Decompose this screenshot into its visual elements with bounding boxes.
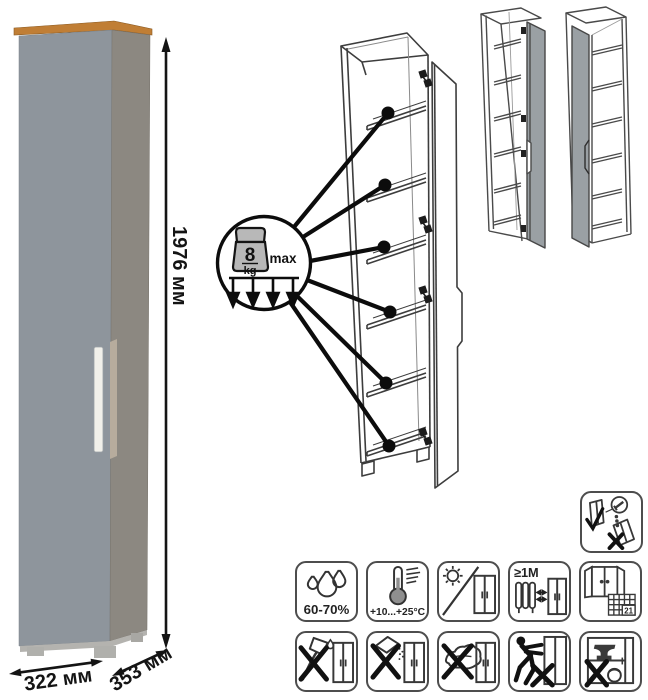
ventilation-icon: 21 xyxy=(579,561,642,622)
door-handle xyxy=(94,347,103,452)
shelves xyxy=(367,101,426,456)
cabinet-foot xyxy=(131,633,143,642)
anvil-glyph xyxy=(594,645,616,660)
no-aggressive-liquids-icon xyxy=(295,631,358,692)
heating-distance-label: ≥1M xyxy=(514,565,539,580)
temperature-icon: +10...+25°C xyxy=(366,561,429,622)
cabinet-foot xyxy=(94,646,116,658)
cabinet-photo xyxy=(0,0,210,700)
cabinet-line-drawing xyxy=(341,33,462,488)
height-dimension-label: 1976 мм xyxy=(167,226,190,306)
no-overload-icon xyxy=(579,631,642,692)
no-pushing-icon xyxy=(508,631,571,692)
max-load-callout: 8 kg max xyxy=(218,217,311,310)
no-abrasive-sponge-icon xyxy=(437,631,500,692)
humidity-icon: 60-70% xyxy=(295,561,358,622)
shelf-callout-dots xyxy=(378,107,397,453)
open-door-drawing xyxy=(432,62,462,488)
heating-distance-icon: ≥1M xyxy=(508,561,571,622)
cabinet-edge-strip xyxy=(110,339,117,459)
product-sheet: 1976 мм 322 мм 353 мм xyxy=(0,0,648,700)
no-direct-sunlight-icon xyxy=(437,561,500,622)
cabinet-side-panel xyxy=(110,30,150,641)
wall-anchor-icon xyxy=(580,491,643,553)
variant-drawings xyxy=(470,0,648,255)
weight-icon: 8 kg xyxy=(233,228,268,277)
variant-left-door xyxy=(566,7,631,247)
cabinet-foot xyxy=(27,647,44,656)
calendar-day-label: 21 xyxy=(624,607,633,616)
height-dimension-arrow xyxy=(162,37,171,649)
variant-right-door xyxy=(481,8,545,248)
shelf-load-diagram: 8 kg max xyxy=(210,15,480,500)
max-label: max xyxy=(269,251,297,266)
no-abrasive-powder-icon xyxy=(366,631,429,692)
humidity-label: 60-70% xyxy=(304,602,350,617)
cabinet-door xyxy=(19,30,112,646)
weight-unit: kg xyxy=(244,265,257,277)
temperature-label: +10...+25°C xyxy=(370,607,426,618)
